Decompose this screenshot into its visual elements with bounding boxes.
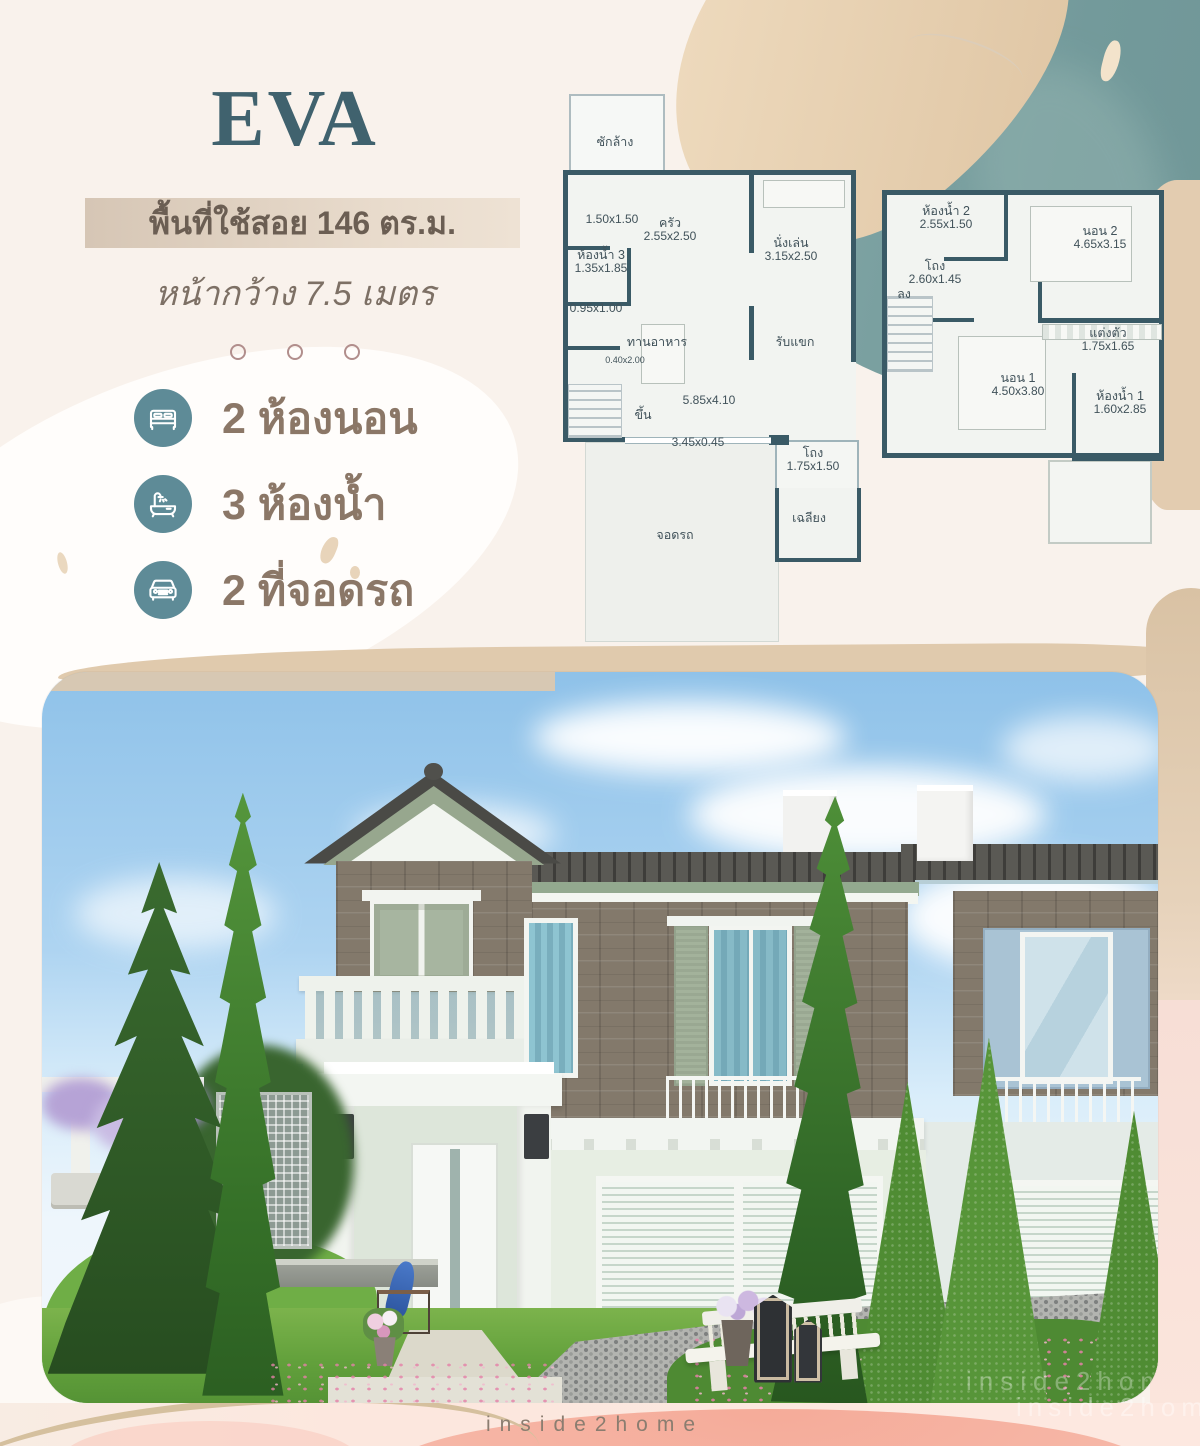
gable-finial <box>424 763 443 781</box>
room-label-bed2: นอน 24.65x3.15 <box>1074 224 1127 252</box>
main-roof <box>511 852 915 886</box>
plan2-terrace <box>1048 460 1152 544</box>
dot <box>287 344 303 360</box>
plan2-wall <box>1038 318 1164 323</box>
first-floor-plan: ซักล้าง 1.50x1.50 ครัว2.55x2.50 นั่งเล่น… <box>563 88 858 646</box>
tower-balcony-rail <box>299 976 538 991</box>
second-floor-plan: ห้องน้ำ 22.55x1.50 นอน 24.65x3.15 โถง2.6… <box>882 168 1167 588</box>
room-label-living: นั่งเล่น3.15x2.50 <box>765 236 818 264</box>
plan1-stairs <box>568 384 622 438</box>
plan1-dining-table <box>641 324 685 384</box>
room-label-laundry: ซักล้าง <box>597 135 634 149</box>
flower-pot-small <box>363 1308 403 1342</box>
room-label-kitchen: ครัว2.55x2.50 <box>644 216 697 244</box>
corner-watermark: inside2home <box>1016 1392 1200 1423</box>
decor-tan-strip-top <box>42 672 555 691</box>
plan2-wall <box>1072 373 1076 458</box>
plan1-wall <box>749 306 754 360</box>
upper-window-lintel <box>667 916 834 926</box>
room-label-hall2: โถง2.60x1.45 <box>909 259 962 287</box>
bed-icon <box>134 389 192 447</box>
model-title: EVA <box>60 74 530 165</box>
wall-sconce <box>524 1114 549 1159</box>
upper-window-narrow <box>524 918 578 1079</box>
room-label-bath1: ห้องน้ำ 11.60x2.85 <box>1094 389 1147 417</box>
frontage-label: หน้ากว้าง 7.5 เมตร <box>60 266 530 320</box>
cloud <box>533 701 845 774</box>
flower-bed-front <box>265 1359 555 1403</box>
room-label-porch: เฉลียง <box>792 511 826 525</box>
room-label-stairs-up: ขึ้น <box>634 408 651 422</box>
room-label-dim095: 0.95x1.00 <box>570 302 623 316</box>
room-label-hall1: โถง1.75x1.50 <box>787 446 840 474</box>
bench-leg <box>840 1349 858 1381</box>
shutter-left <box>674 925 708 1086</box>
tower-door <box>370 900 473 985</box>
house-photo: inside2home <box>42 672 1158 1403</box>
cloud <box>1002 716 1158 782</box>
room-label-dim585: 5.85x4.10 <box>683 394 736 408</box>
porch-crown <box>324 1062 554 1074</box>
feature-bedrooms: 2 ห้องนอน <box>134 384 418 452</box>
room-label-guest: รับแขก <box>776 335 815 349</box>
feature-list: 2 ห้องนอน 3 ห้องน้ำ 2 ที่จอดรถ <box>134 384 418 642</box>
usable-area-bar: พื้นที่ใช้สอย 146 ตร.ม. <box>85 198 520 248</box>
car-icon <box>134 561 192 619</box>
window-mullion <box>749 925 753 1086</box>
plan1-wall <box>749 175 754 253</box>
plan2-wall <box>1004 195 1008 261</box>
plan1-wall <box>568 346 620 350</box>
porch-beam <box>317 1073 563 1107</box>
room-label-stairs-down: ลง <box>897 287 911 301</box>
room-label-bed1: นอน 14.50x3.80 <box>992 371 1045 399</box>
feature-bedrooms-label: 2 ห้องนอน <box>222 384 418 452</box>
room-label-dim040: 0.40x2.00 <box>605 355 645 365</box>
neighbour-balcony-rail <box>991 1077 1142 1128</box>
feature-bathrooms: 3 ห้องน้ำ <box>134 470 418 538</box>
usable-area-label: พื้นที่ใช้สอย 146 ตร.ม. <box>149 198 456 249</box>
lantern <box>754 1295 792 1383</box>
plan1-sofa <box>763 180 845 208</box>
plan1-wall <box>627 248 631 306</box>
room-label-dining: ทานอาหาร <box>627 335 687 349</box>
chimney <box>917 785 973 862</box>
brand-text: inside2home <box>0 1403 1190 1446</box>
plan2-stairs <box>887 296 933 372</box>
poster: EVA พื้นที่ใช้สอย 146 ตร.ม. หน้ากว้าง 7.… <box>0 0 1200 1446</box>
tower-balcony-base <box>296 1039 539 1064</box>
room-label-bath2: ห้องน้ำ 22.55x1.50 <box>920 204 973 232</box>
neighbour-window <box>1020 932 1114 1084</box>
plan1-wall <box>769 435 789 445</box>
tower-balcony-balusters <box>305 991 530 1039</box>
room-label-carport: จอดรถ <box>656 528 693 542</box>
bathtub-icon <box>134 475 192 533</box>
lantern <box>794 1320 822 1383</box>
dot <box>344 344 360 360</box>
bench-leg <box>709 1360 727 1392</box>
feature-parking-label: 2 ที่จอดรถ <box>222 556 414 624</box>
divider-dots <box>60 344 530 360</box>
plan1-wall <box>851 170 856 362</box>
plan1-wall <box>563 170 856 175</box>
dot <box>230 344 246 360</box>
room-label-dim345: 3.45x0.45 <box>672 436 725 450</box>
feature-parking: 2 ที่จอดรถ <box>134 556 418 624</box>
room-label-bath3: ห้องน้ำ 31.35x1.85 <box>575 248 628 276</box>
room-label-dressing: แต่งตัว1.75x1.65 <box>1082 326 1135 354</box>
floor-band <box>500 1118 924 1152</box>
room-label-dim150: 1.50x1.50 <box>586 213 639 227</box>
feature-bathrooms-label: 3 ห้องน้ำ <box>222 470 387 538</box>
plan2-wall <box>1072 456 1164 461</box>
